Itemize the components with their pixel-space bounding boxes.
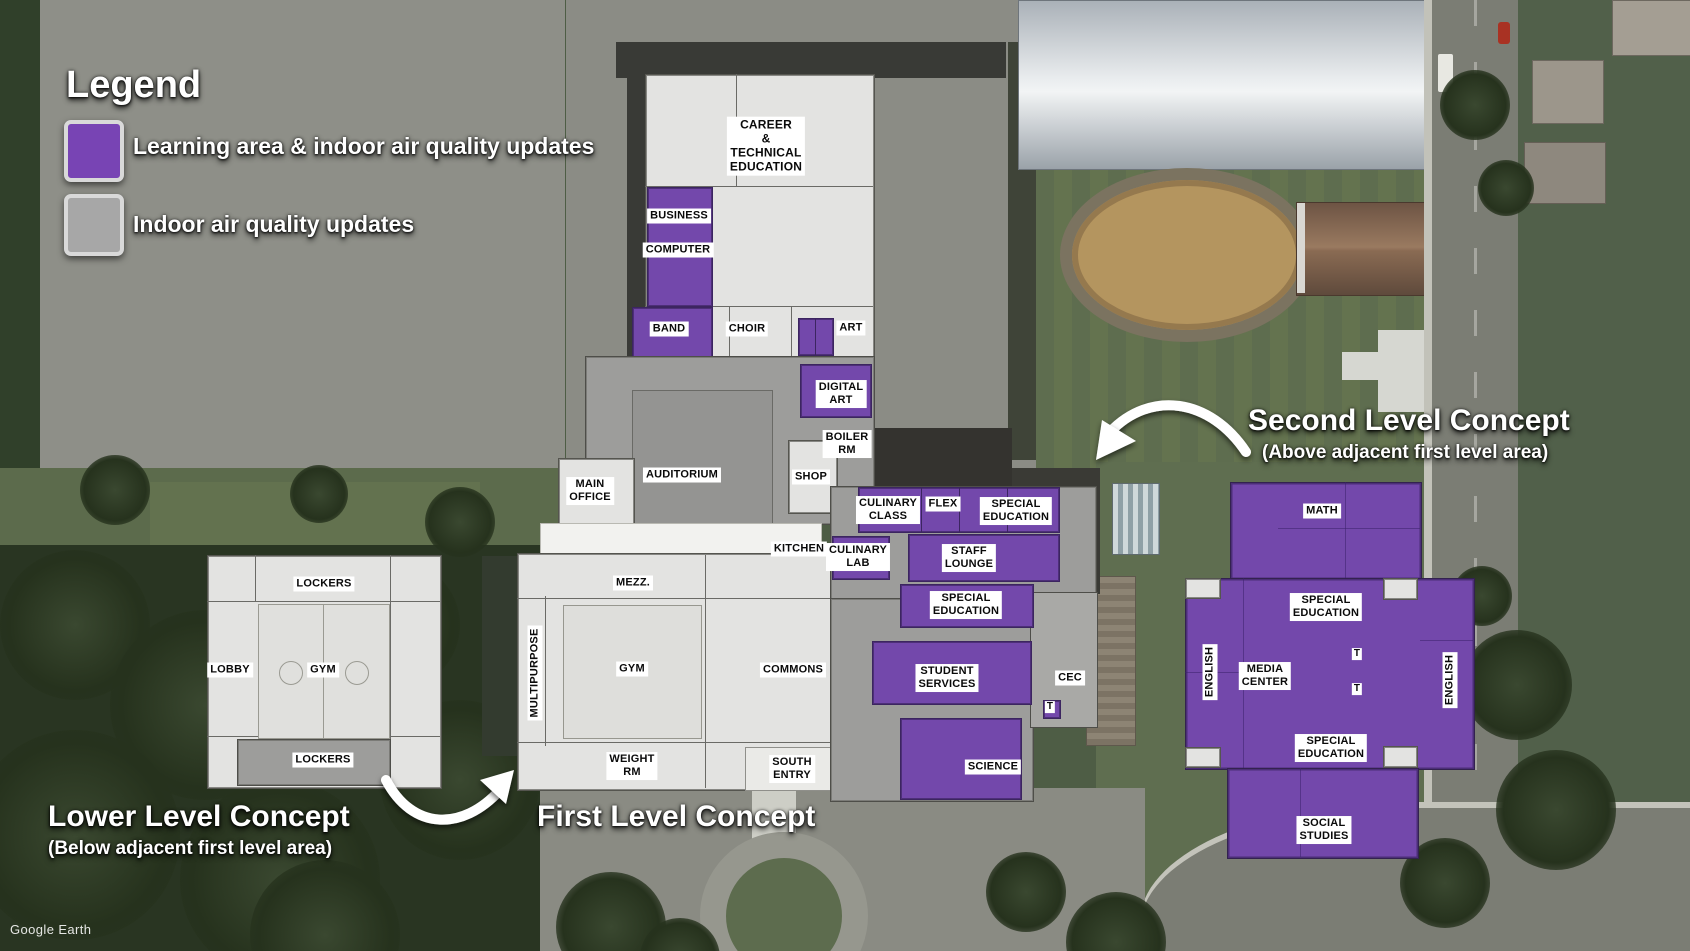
lower-level-subtitle: (Below adjacent first level area) <box>48 838 332 860</box>
second-level-title: Second Level Concept <box>1248 404 1570 438</box>
legend-swatch-purple <box>64 120 124 182</box>
lower-level-title: Lower Level Concept <box>48 800 350 834</box>
second-level-arrow <box>1110 405 1246 452</box>
legend-label-learning: Learning area & indoor air quality updat… <box>133 133 594 160</box>
aerial-map: CAREER & TECHNICAL EDUCATIONBUSINESSCOMP… <box>0 0 1690 951</box>
legend-swatch-gray <box>64 194 124 256</box>
google-earth-watermark: Google Earth <box>10 922 91 937</box>
legend-title: Legend <box>66 64 201 107</box>
legend-label-air-quality: Indoor air quality updates <box>133 211 414 238</box>
second-level-subtitle: (Above adjacent first level area) <box>1262 442 1548 464</box>
first-level-title: First Level Concept <box>537 800 815 834</box>
first-level-arrow <box>386 780 500 820</box>
